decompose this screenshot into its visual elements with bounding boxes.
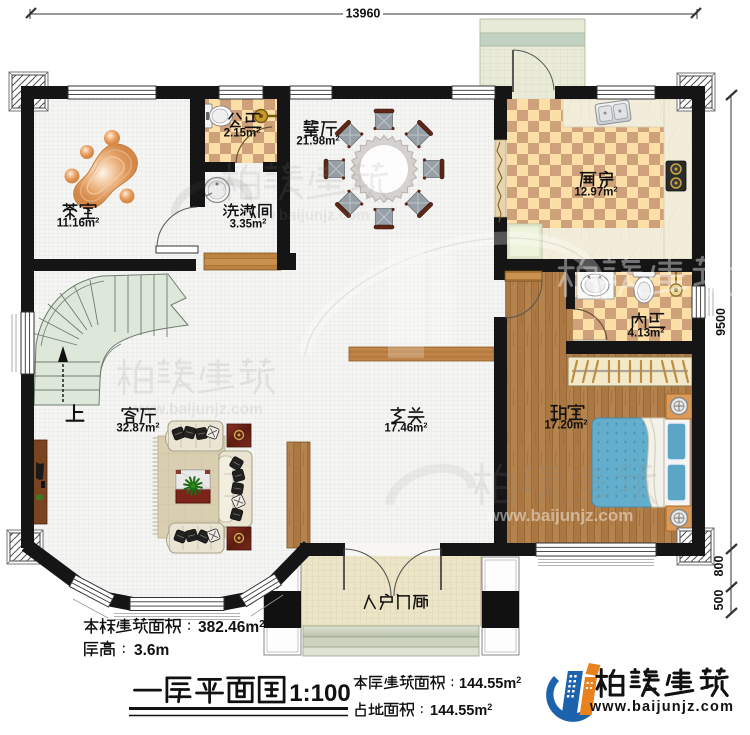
- svg-text:144.55m2: 144.55m2: [459, 675, 521, 692]
- svg-text:17.20m2: 17.20m2: [544, 417, 587, 431]
- svg-text:4.13m2: 4.13m2: [628, 325, 665, 339]
- svg-text:32.87m2: 32.87m2: [116, 420, 159, 434]
- svg-text:2.15m2: 2.15m2: [224, 125, 261, 139]
- svg-text:www.baijunjz.com: www.baijunjz.com: [486, 506, 634, 525]
- svg-text:12.97m2: 12.97m2: [574, 184, 617, 198]
- svg-text:13960: 13960: [346, 7, 381, 21]
- svg-text:21.98m2: 21.98m2: [296, 133, 339, 147]
- svg-text:9500: 9500: [714, 308, 728, 336]
- svg-text:144.55m2: 144.55m2: [430, 702, 492, 719]
- svg-text:www.baijunjz.com: www.baijunjz.com: [589, 699, 734, 715]
- svg-text:1:100: 1:100: [289, 680, 350, 707]
- svg-text:3.6m: 3.6m: [134, 642, 169, 659]
- svg-text:17.46m2: 17.46m2: [384, 420, 427, 434]
- svg-text:382.46m2: 382.46m2: [198, 619, 265, 636]
- svg-text:3.35m2: 3.35m2: [230, 216, 267, 230]
- svg-text:500: 500: [712, 590, 726, 611]
- svg-text:11.16m2: 11.16m2: [57, 215, 100, 229]
